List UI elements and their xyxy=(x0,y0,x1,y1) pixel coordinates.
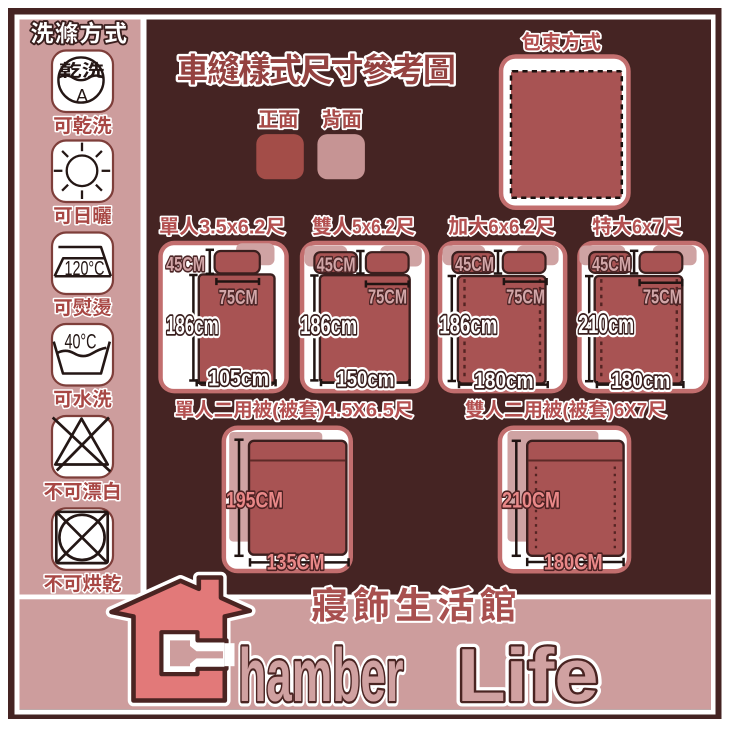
svg-text:105cm: 105cm xyxy=(208,366,269,391)
svg-text:210cm: 210cm xyxy=(578,309,634,339)
svg-text:75CM: 75CM xyxy=(219,286,258,309)
svg-text:186cm: 186cm xyxy=(439,310,497,340)
svg-text:5x6.2: 5x6.2 xyxy=(352,217,395,239)
svg-text:210CM: 210CM xyxy=(502,488,560,513)
svg-text:45CM: 45CM xyxy=(455,253,494,276)
svg-text:75CM: 75CM xyxy=(643,286,682,309)
svg-text:195CM: 195CM xyxy=(226,488,283,513)
svg-text:150cm: 150cm xyxy=(336,367,394,392)
svg-text:)6X7: )6X7 xyxy=(608,400,647,422)
svg-text:180cm: 180cm xyxy=(611,368,670,393)
svg-text:6x7: 6x7 xyxy=(632,217,662,239)
svg-text:45CM: 45CM xyxy=(592,253,631,276)
svg-text:186cm: 186cm xyxy=(166,310,219,340)
svg-text:120°C: 120°C xyxy=(65,258,105,280)
svg-text:40°C: 40°C xyxy=(65,331,97,354)
svg-text:75CM: 75CM xyxy=(506,286,545,309)
svg-text:3.5x6.2: 3.5x6.2 xyxy=(199,217,265,239)
svg-text:45CM: 45CM xyxy=(317,254,356,277)
svg-text:75CM: 75CM xyxy=(368,286,407,309)
svg-text:Life: Life xyxy=(457,633,599,717)
svg-text:135CM: 135CM xyxy=(267,550,325,575)
svg-text:A: A xyxy=(76,86,88,106)
svg-text:180CM: 180CM xyxy=(544,550,603,575)
svg-text:6x6.2: 6x6.2 xyxy=(488,217,535,239)
svg-text:hamber: hamber xyxy=(239,633,404,717)
svg-text:186cm: 186cm xyxy=(300,310,357,340)
svg-text:180cm: 180cm xyxy=(474,368,533,393)
svg-text:45CM: 45CM xyxy=(166,253,205,276)
svg-text:)4.5X6.5: )4.5X6.5 xyxy=(318,400,394,422)
